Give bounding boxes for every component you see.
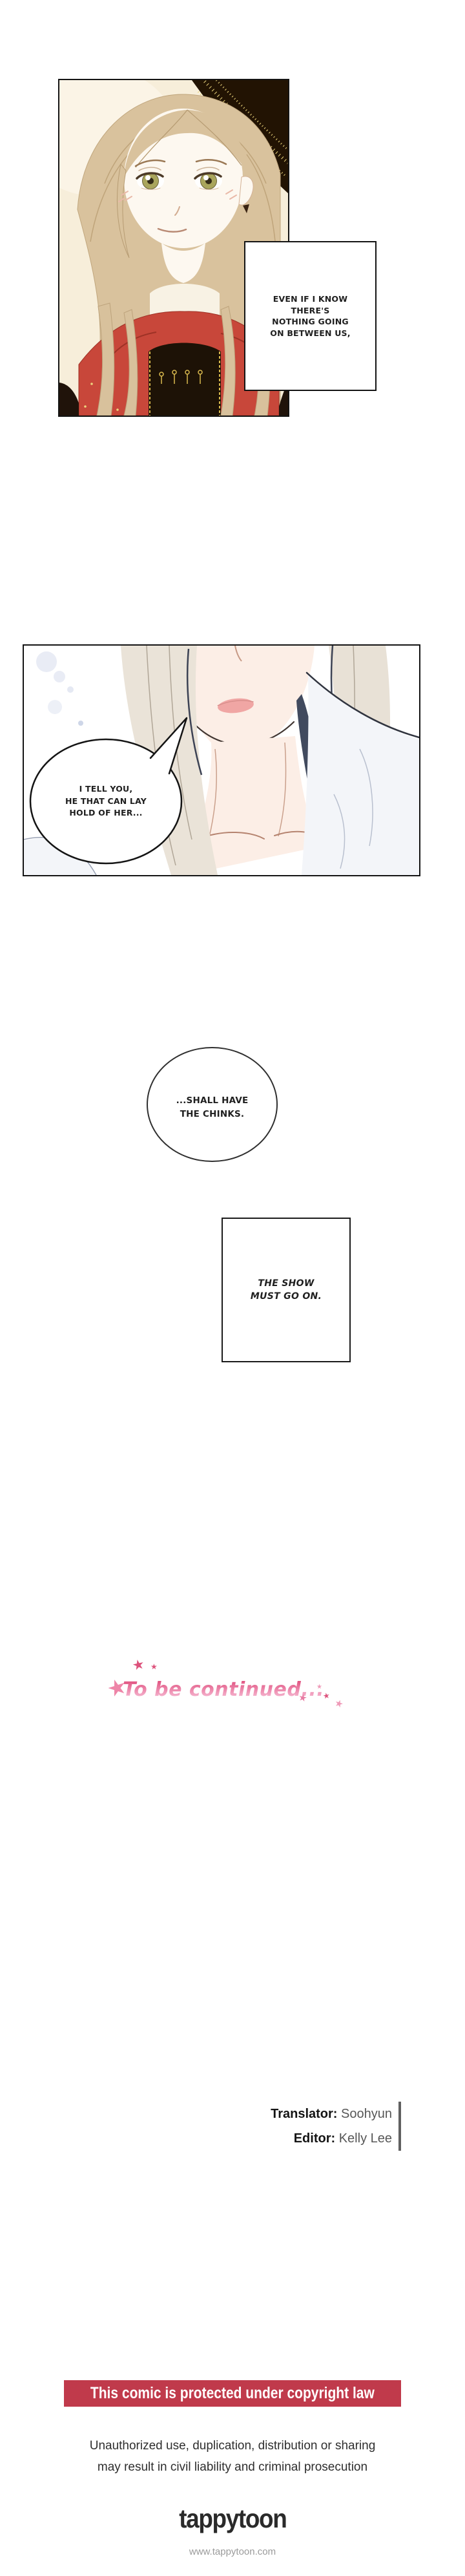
comic-episode-page: EVEN IF I KNOW THERE'S NOTHING GOING ON … <box>0 0 465 2576</box>
copyright-banner-text: This comic is protected under copyright … <box>90 2384 375 2403</box>
speech-balloon-text: I TELL YOU, HE THAT CAN LAY HOLD OF HER.… <box>30 739 181 863</box>
balloon-line: THE CHINKS. <box>148 1108 276 1121</box>
star-icon: ★ <box>298 1693 308 1704</box>
to-be-continued-text: To be continued... <box>123 1678 324 1701</box>
caption-line: NOTHING GOING <box>245 316 375 328</box>
credit-row-translator: Translator: Soohyun <box>271 2106 392 2122</box>
credit-row-editor: Editor: Kelly Lee <box>271 2131 392 2146</box>
disclaimer-line: may result in civil liability and crimin… <box>0 2456 465 2478</box>
oval-speech-balloon: ...SHALL HAVE THE CHINKS. <box>147 1047 278 1162</box>
credits-block: Translator: Soohyun Editor: Kelly Lee <box>0 2102 401 2151</box>
publisher-url: www.tappytoon.com <box>0 2546 465 2557</box>
credits-divider-bar <box>398 2102 401 2151</box>
caption-line: THERE'S <box>245 305 375 317</box>
comic-panel-3: THE SHOW MUST GO ON. <box>222 1218 351 1362</box>
narration-caption-box: EVEN IF I KNOW THERE'S NOTHING GOING ON … <box>244 241 377 391</box>
star-icon: ★ <box>322 1691 331 1700</box>
balloon-line: HOLD OF HER... <box>30 807 181 819</box>
balloon-line: ...SHALL HAVE <box>148 1094 276 1108</box>
tappytoon-logo-text: tappytoon <box>179 2504 286 2534</box>
copyright-disclaimer: Unauthorized use, duplication, distribut… <box>0 2435 465 2478</box>
star-icon: ★ <box>150 1663 158 1671</box>
translator-label: Translator: <box>271 2107 337 2121</box>
translator-name: Soohyun <box>341 2107 392 2121</box>
star-icon: ★ <box>131 1657 146 1673</box>
balloon-line: I TELL YOU, <box>30 783 181 796</box>
star-icon: ★ <box>316 1684 322 1691</box>
panel-text-line: MUST GO ON. <box>223 1290 349 1303</box>
comic-panel-2: I TELL YOU, HE THAT CAN LAY HOLD OF HER.… <box>23 644 420 876</box>
disclaimer-line: Unauthorized use, duplication, distribut… <box>0 2435 465 2456</box>
tappytoon-logo: tappytoon <box>0 2504 465 2534</box>
caption-line: ON BETWEEN US, <box>245 328 375 339</box>
panel-text-line: THE SHOW <box>223 1277 349 1290</box>
caption-line: EVEN IF I KNOW <box>245 293 375 305</box>
balloon-line: HE THAT CAN LAY <box>30 796 181 808</box>
copyright-banner: This comic is protected under copyright … <box>64 2380 401 2407</box>
editor-label: Editor: <box>294 2131 335 2146</box>
star-icon: ★ <box>333 1698 344 1709</box>
editor-name: Kelly Lee <box>339 2131 392 2146</box>
